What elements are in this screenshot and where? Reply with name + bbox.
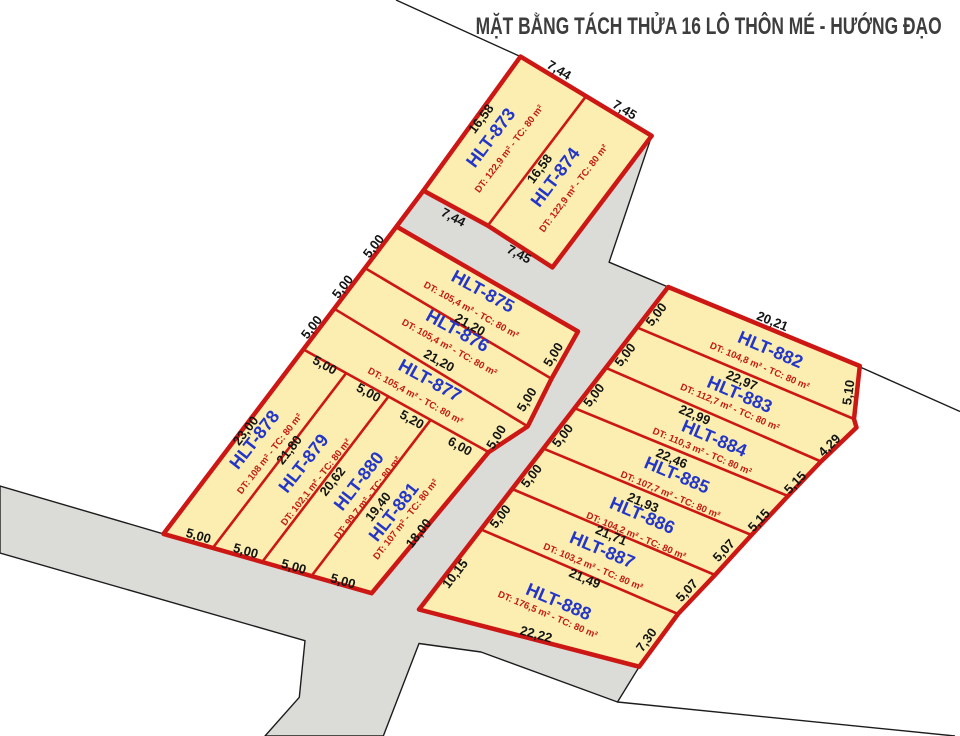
svg-text:MẶT BẰNG TÁCH THỬA 16 LÔ THÔN: MẶT BẰNG TÁCH THỬA 16 LÔ THÔN MÉ - HƯỚNG… [476,11,942,40]
